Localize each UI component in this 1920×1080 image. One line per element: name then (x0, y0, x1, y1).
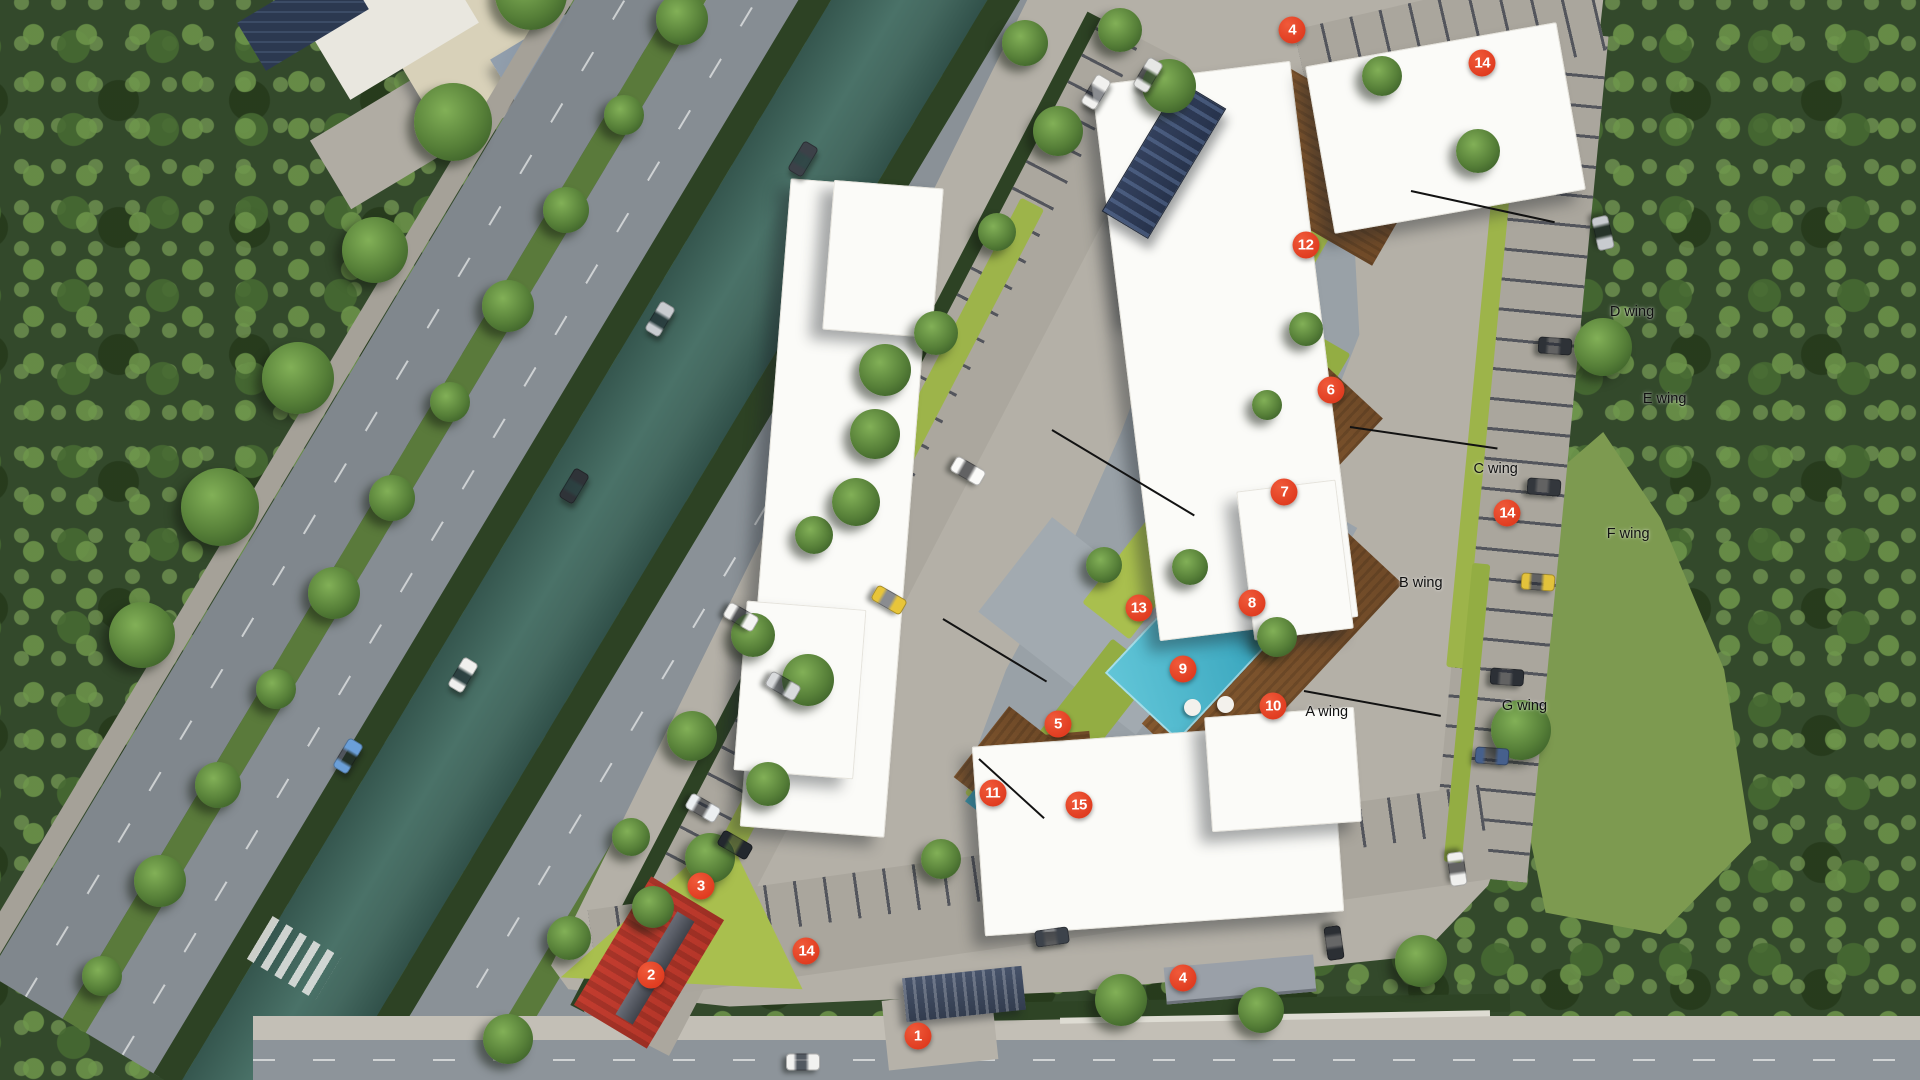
median-tree (795, 516, 833, 554)
median-tree (1033, 106, 1083, 156)
median-tree (195, 762, 241, 808)
median-tree (547, 916, 591, 960)
median-tree (430, 382, 470, 422)
median-tree (342, 217, 408, 283)
median-tree (308, 567, 360, 619)
wing-label: B wing (1399, 575, 1443, 591)
tree (1086, 547, 1122, 583)
median-tree (612, 818, 650, 856)
car (1474, 746, 1509, 765)
car (1490, 667, 1525, 686)
median-tree (109, 602, 175, 668)
car (786, 1053, 820, 1070)
building-east-slab-step (1236, 479, 1354, 640)
car (1520, 572, 1555, 591)
median-tree (369, 475, 415, 521)
site-marker[interactable]: 15 (1066, 791, 1093, 818)
median-tree (604, 95, 644, 135)
site-marker[interactable]: 13 (1125, 595, 1152, 622)
site-marker[interactable]: 6 (1317, 376, 1344, 403)
car (1526, 477, 1561, 496)
site-marker[interactable]: 4 (1279, 17, 1306, 44)
site-marker[interactable]: 14 (1469, 49, 1496, 76)
median-tree (543, 187, 589, 233)
tree (1252, 390, 1282, 420)
tree (1574, 318, 1632, 376)
car (1591, 215, 1615, 252)
tree (1395, 935, 1447, 987)
tree (921, 839, 961, 879)
wing-label: G wing (1502, 698, 1547, 714)
site-marker[interactable]: 12 (1292, 232, 1319, 259)
tree (1172, 549, 1208, 585)
tree (746, 762, 790, 806)
site-marker[interactable]: 7 (1271, 479, 1298, 506)
wing-label: D wing (1610, 304, 1654, 320)
site-marker[interactable]: 14 (793, 938, 820, 965)
median-tree (482, 280, 534, 332)
car (1538, 336, 1573, 355)
wing-label: F wing (1607, 526, 1650, 542)
median-tree (134, 855, 186, 907)
site-marker[interactable]: 8 (1238, 589, 1265, 616)
tree (1238, 987, 1284, 1033)
median-tree (1098, 8, 1142, 52)
pool-cabana (1184, 699, 1201, 716)
tree (1095, 974, 1147, 1026)
site-marker[interactable]: 10 (1259, 693, 1286, 720)
median-tree (262, 342, 334, 414)
tree (1289, 312, 1323, 346)
site-marker[interactable]: 4 (1169, 965, 1196, 992)
site-marker[interactable]: 5 (1044, 710, 1071, 737)
tree (1362, 56, 1402, 96)
median-tree (667, 711, 717, 761)
building-south-cluster-ext (1204, 707, 1362, 832)
median-tree (850, 409, 900, 459)
wing-label: A wing (1305, 704, 1348, 720)
site-marker[interactable]: 14 (1494, 500, 1521, 527)
wing-label: C wing (1474, 461, 1518, 477)
tree (1456, 129, 1500, 173)
median-tree (82, 956, 122, 996)
site-marker[interactable]: 9 (1169, 655, 1196, 682)
site-marker[interactable]: 2 (637, 962, 664, 989)
median-tree (978, 213, 1016, 251)
wing-label: E wing (1643, 391, 1687, 407)
median-tree (414, 83, 492, 161)
median-tree (914, 311, 958, 355)
tree (632, 886, 674, 928)
site-marker[interactable]: 3 (687, 872, 714, 899)
tree (859, 344, 911, 396)
median-tree (256, 669, 296, 709)
site-plan-canvas: 41412671413891051115314214D wingE wingC … (0, 0, 1920, 1080)
site-marker[interactable]: 11 (979, 779, 1006, 806)
tree (1257, 617, 1297, 657)
site-marker[interactable]: 1 (904, 1022, 931, 1049)
median-tree (181, 468, 259, 546)
pool-cabana (1217, 696, 1234, 713)
median-tree (483, 1014, 533, 1064)
tree (1002, 20, 1048, 66)
tree (832, 478, 880, 526)
